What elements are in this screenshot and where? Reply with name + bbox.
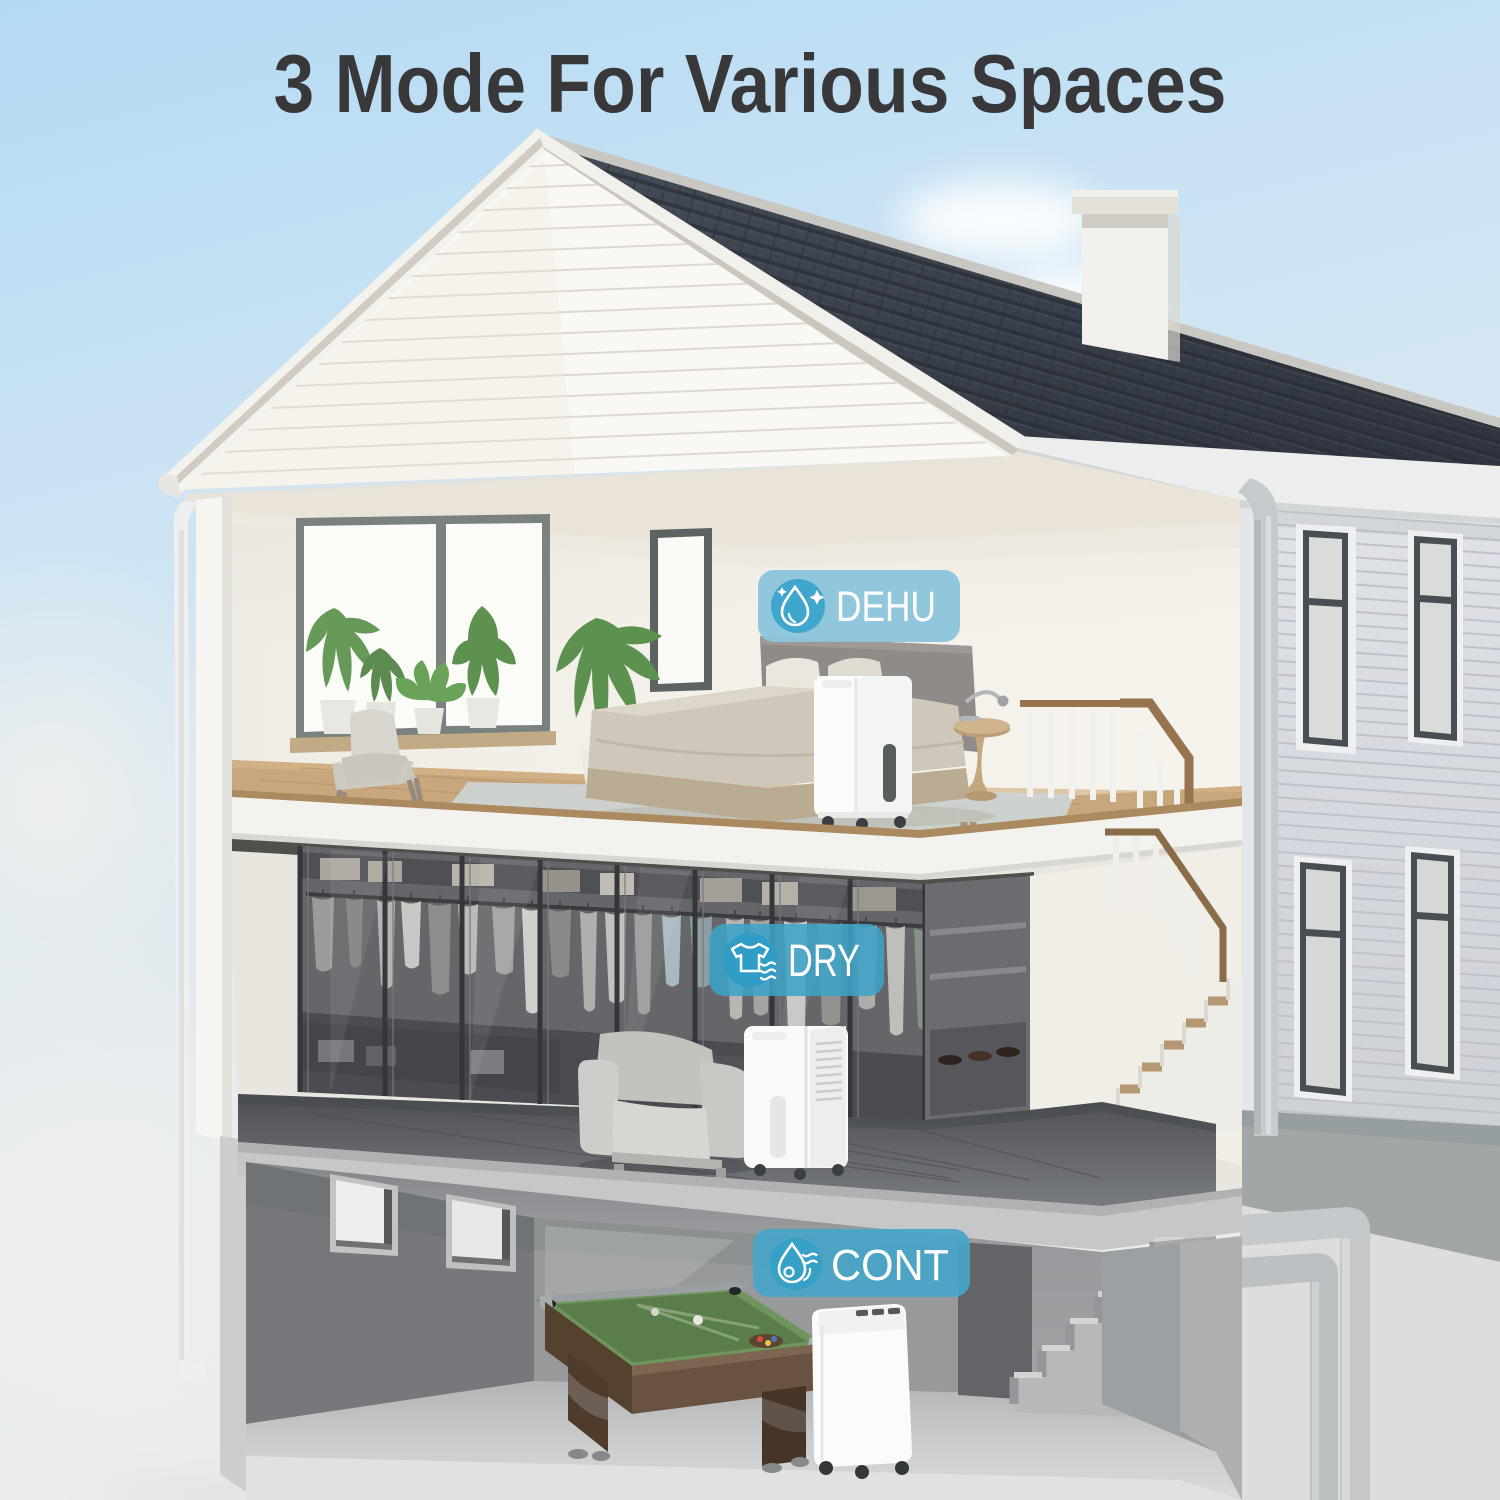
- svg-text:3 Mode For Various Spaces: 3 Mode For Various Spaces: [274, 37, 1227, 130]
- svg-text:CONT: CONT: [831, 1241, 949, 1290]
- svg-text:DRY: DRY: [788, 935, 860, 986]
- svg-text:DEHU: DEHU: [836, 583, 936, 631]
